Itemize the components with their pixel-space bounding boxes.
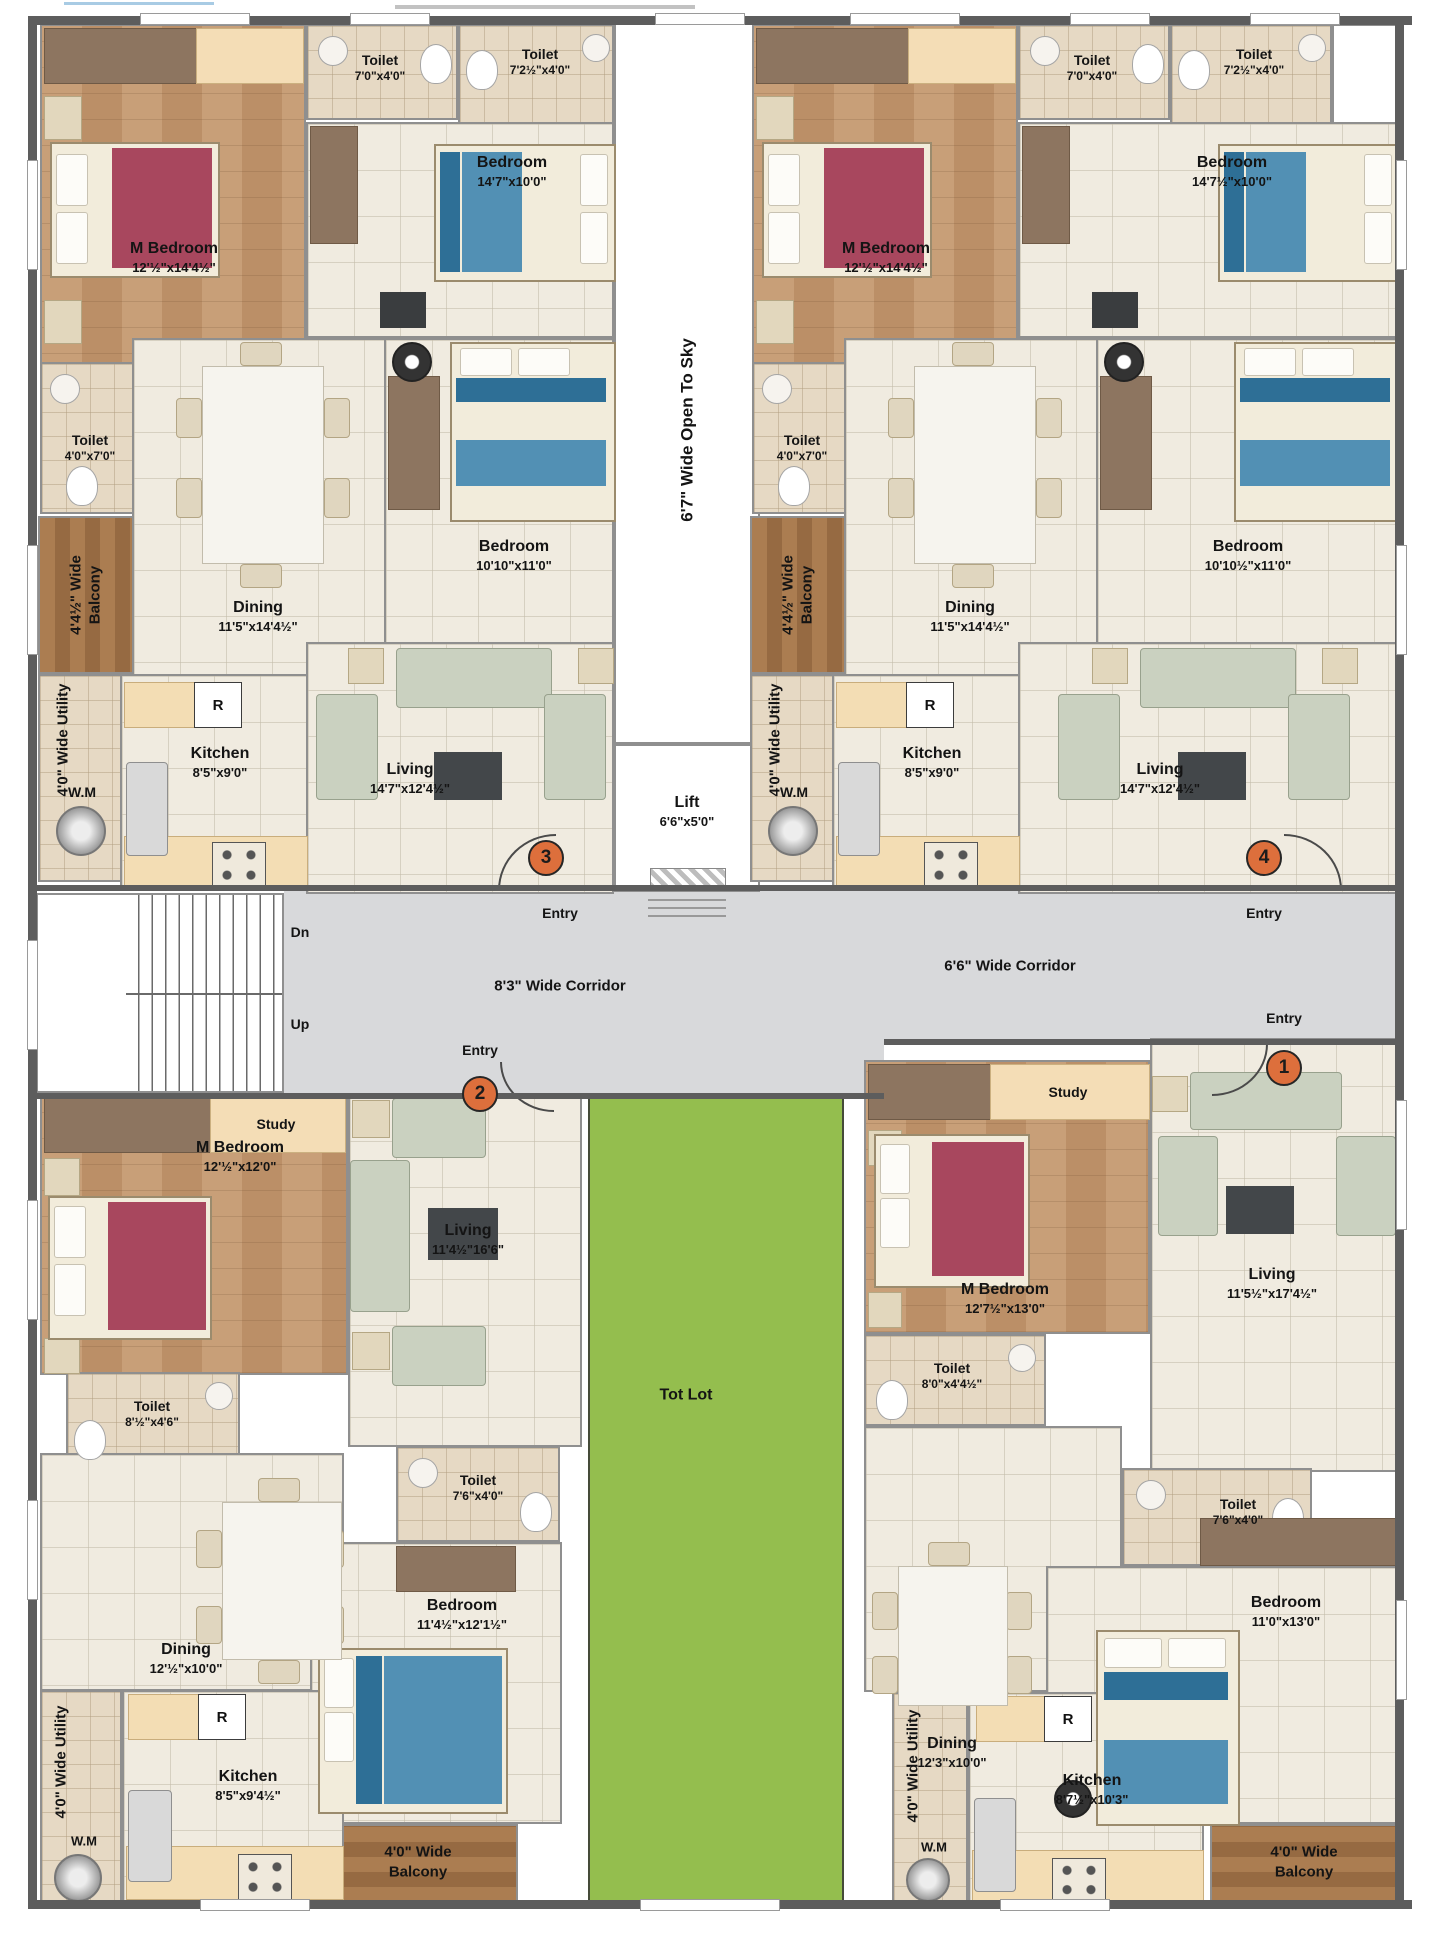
dining-table-icon (202, 366, 324, 564)
flat1-m-bedroom-wardrobe (868, 1064, 992, 1120)
nightstand-icon (44, 96, 82, 140)
dining-table-icon (898, 1566, 1008, 1706)
sofa-icon (316, 694, 378, 800)
flat4-niche (1332, 24, 1398, 126)
side-table-icon (348, 648, 384, 684)
flat4-toilet-top2-label: Toilet7'2½"x4'0" (1224, 45, 1284, 79)
chair-icon (324, 478, 350, 518)
chair-icon (928, 1542, 970, 1566)
flat3-kitchen-label: Kitchen8'5"x9'0" (191, 744, 250, 782)
open-to-sky-label: 6'7" Wide Open To Sky (676, 338, 697, 522)
toilet-icon (876, 1380, 908, 1420)
basin-icon (205, 1382, 233, 1410)
tot-lot-label: Tot Lot (659, 1386, 712, 1407)
sink-icon (838, 762, 880, 856)
flat2-utility-label: 4'0" Wide Utility (53, 1705, 72, 1818)
basin-icon (408, 1458, 438, 1488)
flat3-m-bedroom-wardrobe (44, 28, 198, 84)
side-table-icon (1092, 648, 1128, 684)
chair-icon (1006, 1656, 1032, 1694)
flat2-wm-label: W.M (71, 1834, 97, 1851)
flat1-m-bedroom-label: M Bedroom12'7½"x13'0" (961, 1280, 1049, 1318)
tot-lot (588, 1093, 844, 1903)
sofa-icon (544, 694, 606, 800)
side-table-icon (1152, 1076, 1188, 1112)
wall (884, 1039, 1404, 1045)
wall (36, 885, 1404, 891)
sink-icon (128, 1790, 172, 1882)
toilet-icon (66, 466, 98, 506)
window (27, 545, 38, 655)
flat1-bedroom2-label: Bedroom11'0"x13'0" (1251, 1593, 1321, 1631)
bed-icon (1234, 342, 1400, 522)
window (27, 160, 38, 270)
sofa-icon (1288, 694, 1350, 800)
flat3-toilet-top2-label: Toilet7'2½"x4'0" (510, 45, 570, 79)
nightstand-icon (44, 300, 82, 344)
toilet-icon (778, 466, 810, 506)
washing-machine-icon (906, 1858, 950, 1902)
nightstand-icon (868, 1292, 902, 1328)
window (1396, 1100, 1407, 1230)
flat3-bedroom3-label: Bedroom10'10"x11'0" (476, 537, 552, 575)
flat1-balcony-label: 4'0" WideBalcony (1270, 1843, 1337, 1882)
flat2-fridge-label: R (198, 1694, 246, 1740)
stairs-up-label: Up (291, 1015, 310, 1033)
dining-table-icon (914, 366, 1036, 564)
flat1-entry-label: Entry (1266, 1009, 1302, 1027)
window (640, 1899, 780, 1911)
flat3-fridge-label: R (194, 682, 242, 728)
window (27, 1500, 38, 1600)
side-table-icon (578, 648, 614, 684)
chair-icon (872, 1656, 898, 1694)
flat3-balcony-label: 4'4½" WideBalcony (67, 555, 105, 635)
window (27, 940, 38, 1050)
flat4-toilet-side-label: Toilet4'0"x7'0" (777, 431, 827, 465)
wall (36, 1093, 884, 1099)
flat1-toilet1-label: Toilet8'0"x4'4½" (922, 1359, 982, 1393)
sofa-icon (1158, 1136, 1218, 1236)
flat1-utility-label: 4'0" Wide Utility (905, 1709, 924, 1822)
flat3-bedroom3-wardrobe (388, 376, 440, 510)
toilet-icon (520, 1492, 552, 1532)
flat2-living-label: Living11'4½"16'6" (432, 1221, 504, 1259)
sofa-icon (350, 1160, 410, 1312)
flat4-bedroom3-label: Bedroom10'10½"x11'0" (1205, 537, 1291, 575)
stairs-dn-label: Dn (291, 923, 310, 941)
flat1-dining-label: Dining12'3"x10'0" (917, 1734, 986, 1772)
chair-icon (1006, 1592, 1032, 1630)
bed-icon (318, 1648, 508, 1814)
kitchen-counter (124, 682, 196, 728)
kitchen-counter (836, 682, 908, 728)
speaker-icon (392, 342, 432, 382)
chair-icon (258, 1478, 300, 1502)
basin-icon (1030, 36, 1060, 66)
flat1-entry-marker: 1 (1266, 1050, 1302, 1086)
dining-table-icon (222, 1502, 342, 1660)
speaker-icon (1104, 342, 1144, 382)
flat2-dining-label: Dining12'½"x10'0" (150, 1640, 223, 1678)
kitchen-counter (128, 1694, 200, 1740)
flat3-wm-label: W.M (68, 783, 96, 801)
flat4-kitchen-label: Kitchen8'5"x9'0" (903, 744, 962, 782)
chair-icon (888, 398, 914, 438)
flat2-toilet1-label: Toilet8'½"x4'6" (125, 1397, 179, 1431)
bed-icon (874, 1134, 1030, 1288)
flat4-m-bedroom-wardrobe (756, 28, 910, 84)
chair-icon (240, 564, 282, 588)
washing-machine-icon (54, 1854, 102, 1902)
sofa-icon (1140, 648, 1296, 708)
chair-icon (258, 1660, 300, 1684)
flat2-bedroom2-wardrobe (396, 1546, 516, 1592)
tv-icon (1092, 292, 1138, 328)
window (27, 1200, 38, 1320)
top-artifact-blue (64, 2, 214, 5)
window (350, 13, 430, 25)
flat2-toilet2-label: Toilet7'6"x4'0" (453, 1471, 503, 1505)
staircase (36, 893, 284, 1093)
window (1396, 545, 1407, 655)
chair-icon (196, 1606, 222, 1644)
basin-icon (1136, 1480, 1166, 1510)
flat2-entry-label: Entry (462, 1041, 498, 1059)
flat4-balcony-label: 4'4½" WideBalcony (779, 555, 817, 635)
sofa-icon (1058, 694, 1120, 800)
sink-icon (974, 1798, 1016, 1892)
nightstand-icon (44, 1158, 80, 1196)
chair-icon (176, 478, 202, 518)
top-artifact-gray (395, 5, 695, 9)
flat3-entry-marker: 3 (528, 840, 564, 876)
flat2-balcony-label: 4'0" WideBalcony (384, 1843, 451, 1882)
floor-plan: M Bedroom12'½"x14'4½" Toilet7'0"x4'0" To… (0, 0, 1440, 1936)
chair-icon (324, 398, 350, 438)
chair-icon (196, 1530, 222, 1568)
flat3-m-bedroom-label: M Bedroom12'½"x14'4½" (130, 239, 218, 277)
stair-landing-line (126, 993, 282, 995)
flat2-entry-marker: 2 (462, 1076, 498, 1112)
flat3-toilet-top1-label: Toilet7'0"x4'0" (355, 51, 405, 85)
flat4-toilet-top1-label: Toilet7'0"x4'0" (1067, 51, 1117, 85)
flat4-entry-label: Entry (1246, 904, 1282, 922)
flat1-kitchen-label: Kitchen8'7½"x10'3" (1056, 1771, 1129, 1809)
window (1250, 13, 1340, 25)
flat4-m-bedroom-label: M Bedroom12'½"x14'4½" (842, 239, 930, 277)
window (1396, 1600, 1407, 1700)
stove-icon (238, 1854, 292, 1900)
basin-icon (1008, 1344, 1036, 1372)
basin-icon (582, 34, 610, 62)
nightstand-icon (44, 1338, 80, 1374)
nightstand-icon (756, 96, 794, 140)
chair-icon (888, 478, 914, 518)
flat4-utility-label: 4'0" Wide Utility (767, 683, 786, 796)
flat2-m-bedroom-wardrobe (44, 1097, 212, 1153)
flat3-living-label: Living14'7"x12'4½" (370, 760, 450, 798)
chair-icon (952, 564, 994, 588)
flat3-toilet-side-label: Toilet4'0"x7'0" (65, 431, 115, 465)
window (850, 13, 960, 25)
flat4-fridge-label: R (906, 682, 954, 728)
flat2-kitchen-label: Kitchen8'5"x9'4½" (215, 1767, 281, 1805)
washing-machine-icon (56, 806, 106, 856)
toilet-icon (1132, 44, 1164, 84)
flat3-entry-label: Entry (542, 904, 578, 922)
flat4-bedroom3-wardrobe (1100, 376, 1152, 510)
corridor-right-label: 6'6" Wide Corridor (944, 956, 1075, 976)
window (140, 13, 250, 25)
lift-label: Lift6'6"x5'0" (660, 793, 715, 831)
flat3-dining-label: Dining11'5"x14'4½" (218, 598, 297, 636)
flat1-study-label: Study (1049, 1083, 1088, 1101)
basin-icon (762, 374, 792, 404)
flat1-fridge-label: R (1044, 1696, 1092, 1742)
chair-icon (952, 342, 994, 366)
chair-icon (1036, 398, 1062, 438)
toilet-icon (74, 1420, 106, 1460)
flat3-bedroom2-label: Bedroom14'7"x10'0" (477, 153, 547, 191)
flat4-dining-label: Dining11'5"x14'4½" (930, 598, 1009, 636)
chair-icon (176, 398, 202, 438)
flat3-m-bedroom-closet (196, 28, 304, 84)
window (1396, 160, 1407, 270)
flat2-m-bedroom-label: M Bedroom12'½"x12'0" (196, 1138, 284, 1176)
sofa-icon (396, 648, 552, 708)
coffee-table-icon (1226, 1186, 1294, 1234)
basin-icon (318, 36, 348, 66)
flat2-study-label: Study (257, 1115, 296, 1133)
bed-icon (450, 342, 616, 522)
side-table-icon (1322, 648, 1358, 684)
flat2-bedroom2-label: Bedroom11'4½"x12'1½" (417, 1596, 507, 1634)
toilet-icon (466, 50, 498, 90)
stove-icon (212, 842, 266, 888)
chair-icon (872, 1592, 898, 1630)
basin-icon (1298, 34, 1326, 62)
window (1000, 1899, 1110, 1911)
flat4-bedroom2-label: Bedroom14'7½"x10'0" (1192, 153, 1272, 191)
flat3-bedroom2-wardrobe (310, 126, 358, 244)
bed-icon (48, 1196, 212, 1340)
basin-icon (50, 374, 80, 404)
toilet-icon (420, 44, 452, 84)
flat3-utility-label: 4'0" Wide Utility (55, 683, 74, 796)
sofa-icon (392, 1326, 486, 1386)
sink-icon (126, 762, 168, 856)
flat1-wm-label: W.M (921, 1840, 947, 1857)
stove-icon (924, 842, 978, 888)
window (200, 1899, 310, 1911)
window (1070, 13, 1150, 25)
stove-icon (1052, 1858, 1106, 1902)
toilet-icon (1178, 50, 1210, 90)
washing-machine-icon (768, 806, 818, 856)
corridor-left-label: 8'3" Wide Corridor (494, 976, 625, 996)
lift-step (648, 893, 726, 917)
side-table-icon (352, 1332, 390, 1370)
tv-icon (380, 292, 426, 328)
flat1-toilet2-label: Toilet7'6"x4'0" (1213, 1495, 1263, 1529)
flat4-entry-marker: 4 (1246, 840, 1282, 876)
flat4-bedroom2-wardrobe (1022, 126, 1070, 244)
side-table-icon (352, 1100, 390, 1138)
chair-icon (240, 342, 282, 366)
flat1-living-label: Living11'5½"x17'4½" (1227, 1265, 1317, 1303)
sofa-icon (1336, 1136, 1396, 1236)
chair-icon (1036, 478, 1062, 518)
flat4-living-label: Living14'7"x12'4½" (1120, 760, 1200, 798)
nightstand-icon (756, 300, 794, 344)
flat4-m-bedroom-closet (908, 28, 1016, 84)
flat4-wm-label: W.M (780, 783, 808, 801)
window (655, 13, 745, 25)
